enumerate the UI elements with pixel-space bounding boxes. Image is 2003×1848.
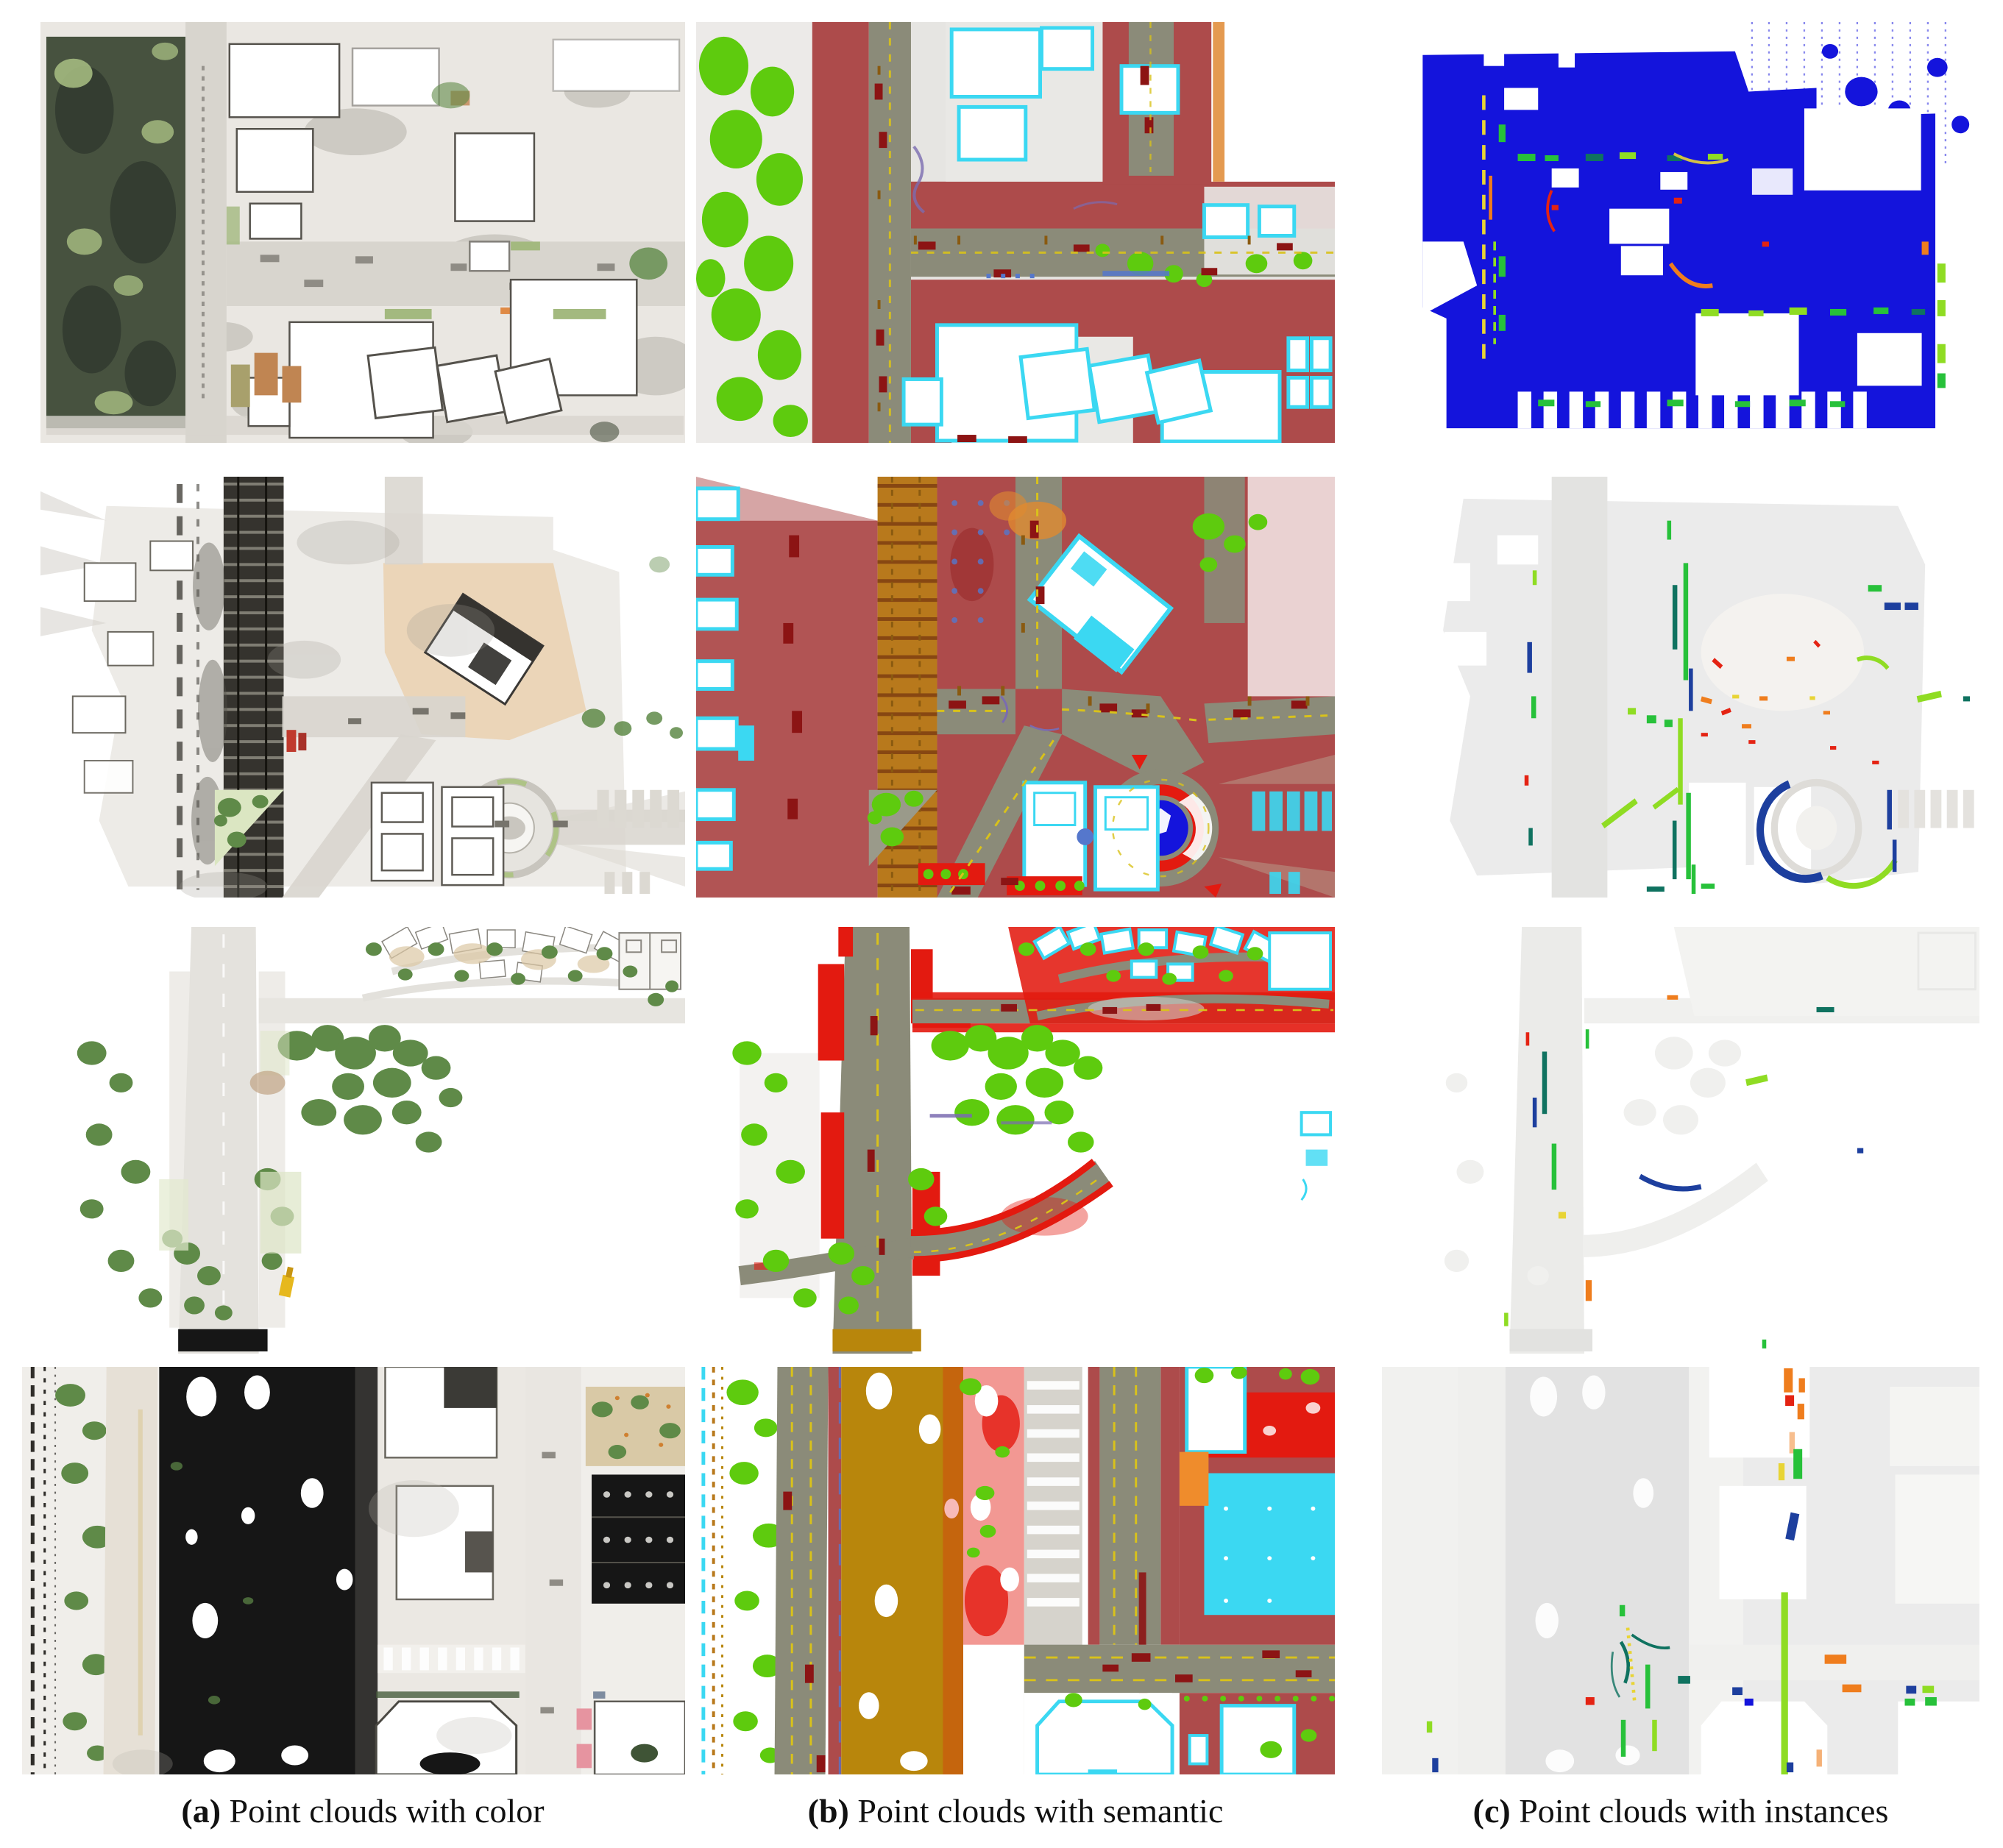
pointcloud-instances-blue-block — [1382, 22, 1979, 443]
pointcloud-instances-t-intersection — [1382, 927, 1979, 1354]
caption-c-label: (c) — [1473, 1792, 1511, 1830]
black-building — [592, 1474, 685, 1603]
caption-b: (b) Point clouds with semantic — [696, 1788, 1335, 1839]
panel-r3-semantic — [696, 927, 1335, 1354]
left-road — [775, 1367, 829, 1774]
vertical-road — [178, 927, 258, 1354]
panel-r4-color — [22, 1367, 685, 1774]
pointcloud-semantic-roundabout — [696, 477, 1335, 898]
caption-a: (a) Point clouds with color — [40, 1788, 685, 1839]
caption-c-text: Point clouds with instances — [1519, 1792, 1888, 1830]
mustard-band — [841, 1367, 963, 1774]
caption-b-text: Point clouds with semantic — [857, 1792, 1223, 1830]
caption-c: (c) Point clouds with instances — [1382, 1788, 1979, 1839]
left-road — [104, 1367, 158, 1774]
road-end-cap — [832, 1329, 921, 1351]
caption-a-text: Point clouds with color — [230, 1792, 545, 1830]
pointcloud-instances-roundabout — [1382, 477, 1979, 898]
caption-a-label: (a) — [181, 1792, 221, 1830]
pointcloud-semantic-urban-block — [696, 22, 1335, 443]
panel-r2-instances — [1382, 477, 1979, 898]
figure-captions: (a) Point clouds with color (b) Point cl… — [0, 1788, 2003, 1839]
red-scatter-zone — [960, 1367, 1024, 1645]
panel-r1-instances — [1382, 22, 1979, 443]
panel-r3-instances — [1382, 927, 1979, 1354]
vertical-road — [832, 927, 912, 1354]
pointcloud-color-urban-block — [40, 22, 685, 443]
pointcloud-color-roundabout — [40, 477, 685, 898]
caption-b-label: (b) — [808, 1792, 849, 1830]
panel-r3-color — [40, 927, 685, 1354]
panel-r1-semantic — [696, 22, 1335, 443]
panel-r1-color — [40, 22, 685, 443]
pointcloud-semantic-t-intersection — [696, 927, 1335, 1354]
shadow-band — [159, 1367, 377, 1774]
bottom-center-block — [1024, 1693, 1172, 1774]
lime-streak — [1782, 1592, 1788, 1774]
top-right-block — [1180, 1367, 1335, 1645]
pointcloud-color-downtown — [22, 1367, 685, 1774]
panel-r2-color — [40, 477, 685, 898]
panel-r4-semantic — [696, 1367, 1335, 1774]
road-end-cap — [178, 1329, 267, 1351]
left-cyan-buildings — [696, 488, 738, 869]
panel-r4-instances — [1382, 1367, 1979, 1774]
park — [586, 1387, 685, 1466]
panel-r2-semantic — [696, 477, 1335, 898]
pointcloud-color-t-intersection — [40, 927, 685, 1354]
bottom-right-block — [1180, 1693, 1335, 1774]
pointcloud-instances-downtown — [1382, 1367, 1979, 1774]
pointcloud-semantic-downtown — [696, 1367, 1335, 1774]
crosswalk — [377, 1645, 525, 1674]
tree-grove — [46, 37, 185, 428]
